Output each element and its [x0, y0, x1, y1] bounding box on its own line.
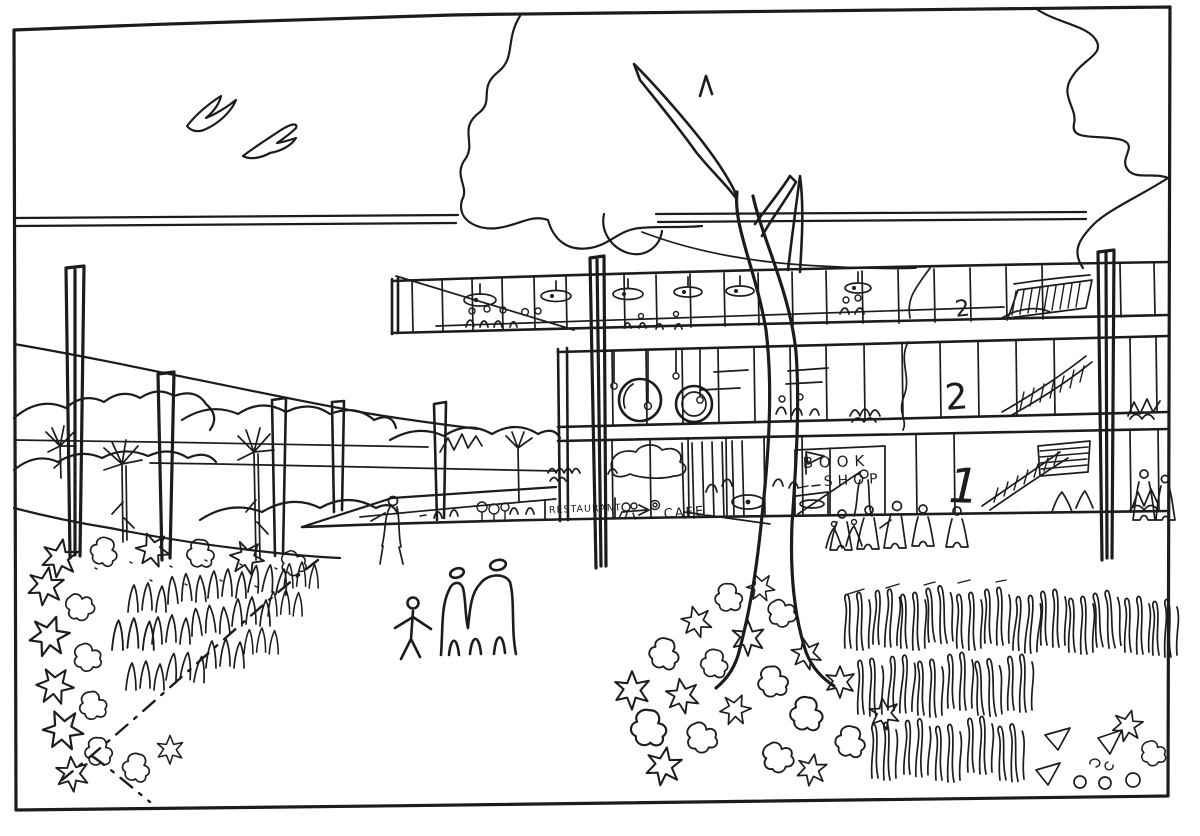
round-tables [619, 379, 712, 422]
reflected-bush [608, 445, 686, 478]
horizon-line [16, 212, 1086, 218]
floor-number-ground: 1 [948, 458, 980, 515]
right-end-bushes [1128, 399, 1160, 419]
escalator-ground [982, 441, 1093, 512]
book-shop: BOOK SHOP [795, 446, 885, 516]
pole [66, 266, 84, 558]
tree-branch [634, 64, 737, 198]
pole [158, 372, 174, 560]
path-edge-dashed [62, 560, 318, 780]
hanging-lamps [611, 350, 703, 410]
sketch-canvas: 2 [0, 0, 1200, 836]
tree-branch [700, 76, 712, 96]
escalator-upper [1002, 275, 1092, 318]
foreground-tree [634, 64, 834, 688]
pole [1098, 250, 1114, 560]
floor-middle: 2 [558, 336, 1168, 521]
pole [332, 401, 344, 512]
pole [272, 398, 286, 556]
restaurant-label: RESTAURANT [549, 502, 622, 516]
cafe-label: CAFE [663, 504, 706, 522]
tree-trunk [716, 192, 770, 688]
corner-scatter [1036, 728, 1140, 789]
fence-rail [150, 463, 556, 471]
background-treeline [642, 232, 916, 268]
meadow-right [615, 569, 1178, 789]
leaf-cluster [25, 528, 308, 793]
floor-number-middle: 2 [943, 376, 969, 419]
sapling-tree [46, 426, 76, 478]
bird-icon [243, 124, 296, 158]
sky [16, 96, 1086, 226]
left-grove [14, 391, 560, 560]
tree-canopy-right [1038, 10, 1168, 268]
pole [434, 402, 446, 520]
pole [590, 256, 606, 568]
horizon-line-2 [16, 219, 1086, 226]
floor-ground: RESTAURANT CAFE BOOK [302, 429, 1168, 527]
person-figure [880, 502, 906, 549]
person-figure [912, 505, 934, 546]
floor-upper: 2 [392, 262, 1168, 334]
child-figure [395, 598, 431, 660]
path-edge-dashed [92, 756, 150, 802]
meadow-left [25, 528, 318, 802]
walking-pair [441, 558, 516, 655]
sapling-tree [506, 432, 532, 502]
window-mullions-middle [612, 337, 1157, 426]
pavilion-building: 2 [302, 262, 1168, 527]
sapling-tree [238, 428, 274, 560]
grass-cluster [112, 562, 318, 690]
book-shop-label-line2: SHOP [823, 471, 883, 490]
grass-cluster [845, 585, 1179, 782]
bird-icon [187, 96, 236, 131]
family-figures [395, 558, 516, 659]
floor-number-upper: 2 [954, 295, 972, 323]
sketch-page: 2 [0, 0, 1200, 836]
